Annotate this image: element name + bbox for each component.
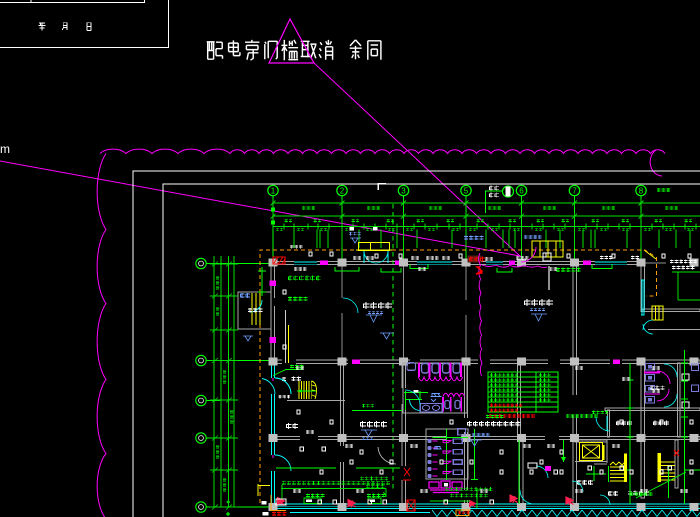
svg-text:1: 1 (271, 187, 276, 196)
svg-text:2: 2 (340, 187, 345, 196)
svg-text:8: 8 (639, 187, 644, 196)
svg-text:m: m (0, 142, 10, 156)
svg-text:6: 6 (519, 187, 524, 196)
svg-text:3: 3 (401, 187, 406, 196)
svg-text:7: 7 (572, 187, 577, 196)
svg-text:5: 5 (464, 187, 469, 196)
